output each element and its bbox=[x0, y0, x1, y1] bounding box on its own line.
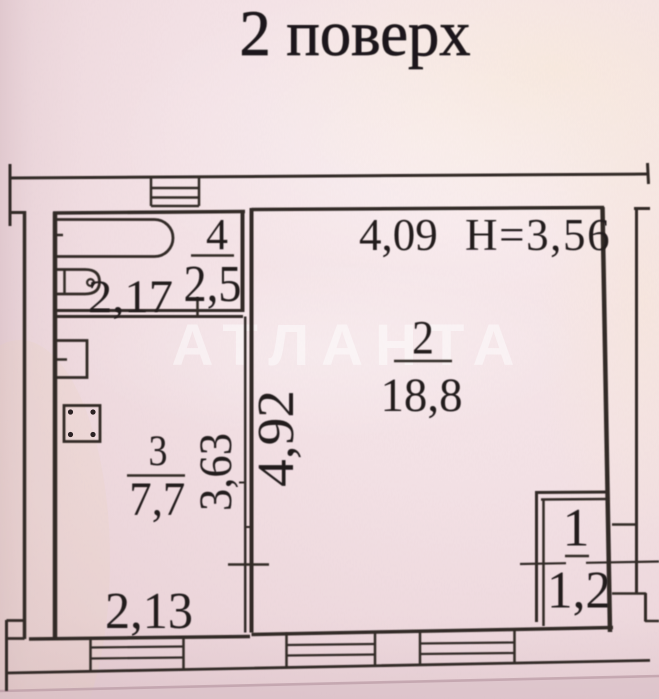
svg-text:2 поверх: 2 поверх bbox=[240, 0, 471, 70]
svg-text:18,8: 18,8 bbox=[381, 369, 463, 422]
svg-text:2,17: 2,17 bbox=[88, 271, 173, 323]
svg-text:2,13: 2,13 bbox=[105, 583, 193, 640]
svg-text:4,92: 4,92 bbox=[248, 390, 305, 487]
svg-text:АТЛАНТА: АТЛАНТА bbox=[171, 313, 526, 378]
svg-text:2,5: 2,5 bbox=[184, 256, 242, 313]
svg-text:Н=3,56: Н=3,56 bbox=[465, 210, 611, 260]
svg-text:4: 4 bbox=[206, 210, 228, 259]
svg-text:1: 1 bbox=[563, 498, 590, 558]
svg-text:1,2: 1,2 bbox=[547, 562, 611, 620]
svg-text:4,09: 4,09 bbox=[359, 210, 438, 260]
svg-text:2: 2 bbox=[412, 312, 434, 365]
svg-text:3,63: 3,63 bbox=[190, 433, 242, 511]
svg-text:7,7: 7,7 bbox=[129, 473, 185, 526]
svg-text:3: 3 bbox=[149, 428, 168, 475]
